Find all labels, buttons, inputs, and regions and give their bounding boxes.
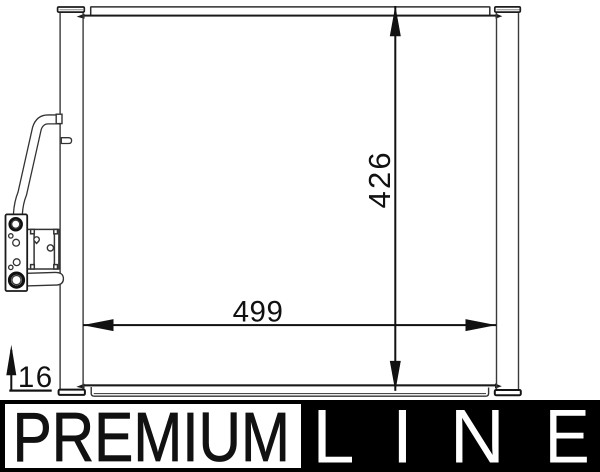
svg-text:L: L bbox=[312, 395, 354, 472]
svg-text:I: I bbox=[392, 395, 413, 472]
svg-text:426: 426 bbox=[362, 150, 397, 208]
svg-text:N: N bbox=[450, 395, 505, 472]
svg-text:PREMIUM: PREMIUM bbox=[13, 398, 290, 472]
svg-text:E: E bbox=[545, 395, 590, 472]
svg-text:499: 499 bbox=[233, 296, 284, 329]
svg-text:16: 16 bbox=[18, 361, 54, 394]
